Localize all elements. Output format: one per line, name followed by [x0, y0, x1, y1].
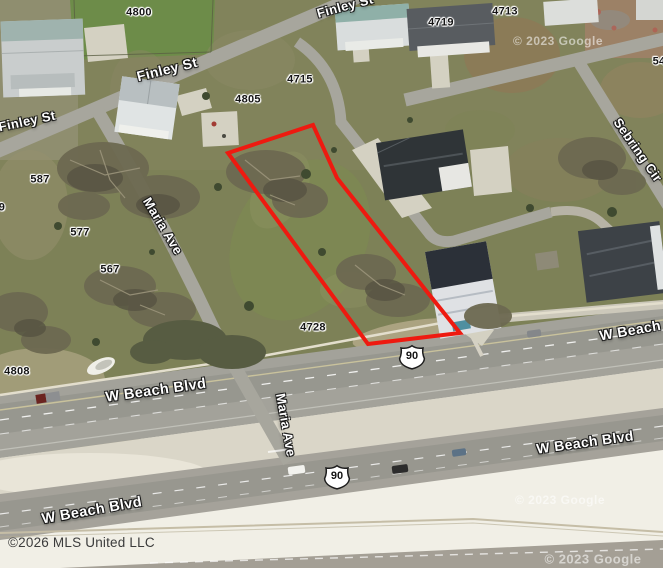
parcel-label: 4800	[126, 8, 152, 19]
parcel-label: 4728	[300, 323, 326, 334]
mls-attribution: ©2026 MLS United LLC	[8, 536, 155, 550]
google-watermark: © 2023 Google	[545, 553, 642, 566]
google-watermark: © 2023 Google	[513, 35, 603, 47]
route-number: 90	[323, 470, 351, 482]
us-route-90-shield: 90	[323, 464, 351, 490]
us-route-90-shield: 90	[398, 344, 426, 370]
parcel-label: 567	[100, 265, 119, 276]
parcel-label: 587	[30, 175, 49, 186]
parcel-label: 4719	[428, 18, 454, 29]
satellite-map[interactable]: 4800 4719 4713 4715 4805 587 9 577 567 4…	[0, 0, 663, 568]
route-number: 90	[398, 350, 426, 362]
parcel-label: 577	[70, 228, 89, 239]
parcel-label: 4805	[235, 95, 261, 106]
parcel-label: 9	[0, 203, 5, 214]
parcel-label: 54	[653, 57, 663, 68]
google-watermark: © 2023 Google	[515, 494, 605, 506]
parcel-label: 4808	[4, 367, 30, 378]
parcel-label: 4713	[492, 7, 518, 18]
parcel-label: 4715	[287, 75, 313, 86]
